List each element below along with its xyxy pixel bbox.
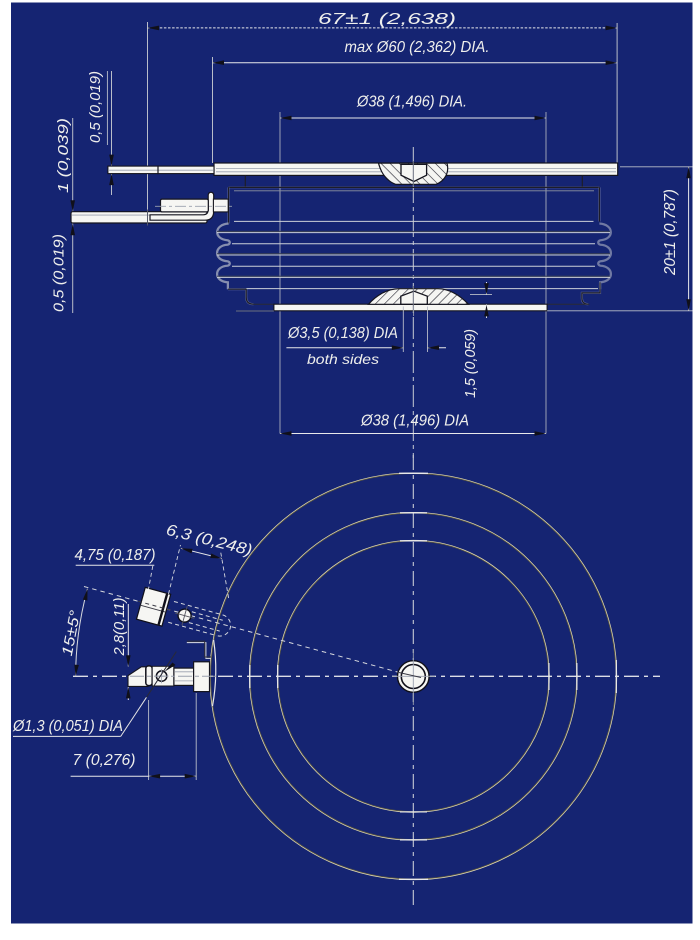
svg-text:Ø38 (1,496) DIA: Ø38 (1,496) DIA [360,413,469,430]
svg-text:max Ø60 (2,362) DIA.: max Ø60 (2,362) DIA. [345,39,490,56]
svg-text:Ø1,3 (0,051) DIA: Ø1,3 (0,051) DIA [12,718,123,735]
svg-text:Ø38 (1,496) DIA.: Ø38 (1,496) DIA. [356,94,467,111]
svg-text:4,75 (0,187): 4,75 (0,187) [75,547,156,564]
svg-text:both sides: both sides [307,351,379,367]
svg-text:Ø3,5 (0,138) DIA: Ø3,5 (0,138) DIA [287,325,398,342]
svg-text:1 (0,039): 1 (0,039) [55,118,72,193]
svg-text:7 (0,276): 7 (0,276) [73,752,136,769]
svg-text:0,5 (0,019): 0,5 (0,019) [51,234,68,312]
svg-text:1,5 (0,059): 1,5 (0,059) [462,329,479,398]
svg-text:2,8(0,11): 2,8(0,11) [111,598,128,657]
svg-text:67±1 (2,638): 67±1 (2,638) [318,11,456,28]
svg-text:20±1 (0,787): 20±1 (0,787) [662,189,679,276]
svg-text:0,5 (0,019): 0,5 (0,019) [87,71,104,143]
